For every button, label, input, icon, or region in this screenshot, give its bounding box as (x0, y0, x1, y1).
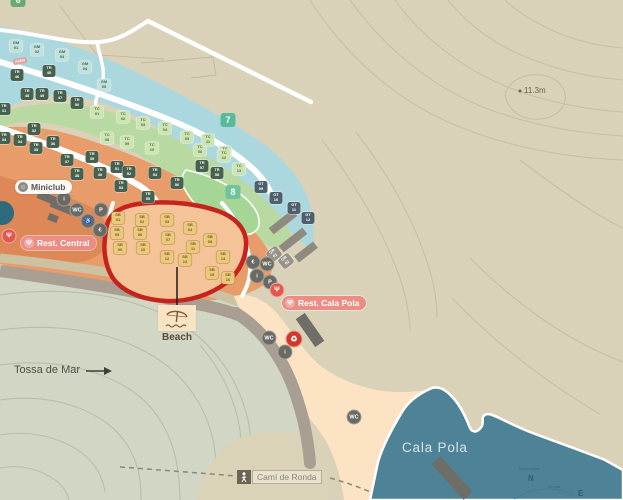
rest-cala-pola-text: Rest. Cala Pola (298, 298, 359, 308)
rest-cala-pola-label: Ψ Rest. Cala Pola (282, 296, 366, 310)
beach-icon-box (158, 305, 196, 331)
hiker-icon (237, 470, 251, 484)
area-tag: ACER (13, 57, 28, 65)
miniclub-icon: ☺ (18, 182, 28, 192)
tossa-de-mar-label: Tossa de Mar (14, 364, 80, 376)
beach-label: Beach (158, 332, 196, 343)
elevation-label: 11.3m (524, 86, 546, 95)
fork-knife-icon: Ψ (24, 238, 34, 248)
beach-umbrella-icon (163, 307, 191, 329)
cami-de-ronda-label: Camí de Ronda (252, 470, 322, 484)
cala-pola-label: Cala Pola (402, 440, 468, 455)
rest-central-label: Ψ Rest. Central (21, 236, 96, 250)
fork-knife-icon: Ψ (285, 298, 295, 308)
compass-east-name: Gregal (548, 484, 560, 489)
compass-north-name: Tramuntana (518, 466, 539, 471)
label-layer: ☺ Miniclub Ψ Rest. Central Ψ Rest. Cala … (0, 0, 623, 500)
rest-central-text: Rest. Central (37, 238, 89, 248)
compass-east: E (578, 489, 583, 498)
compass-north: N (528, 474, 534, 483)
miniclub-text: Miniclub (31, 182, 65, 192)
miniclub-label: ☺ Miniclub (15, 180, 72, 194)
map-canvas[interactable]: GM01GM02GM03GM04GM05TR45TR46TR47TR48TR49… (0, 0, 623, 500)
